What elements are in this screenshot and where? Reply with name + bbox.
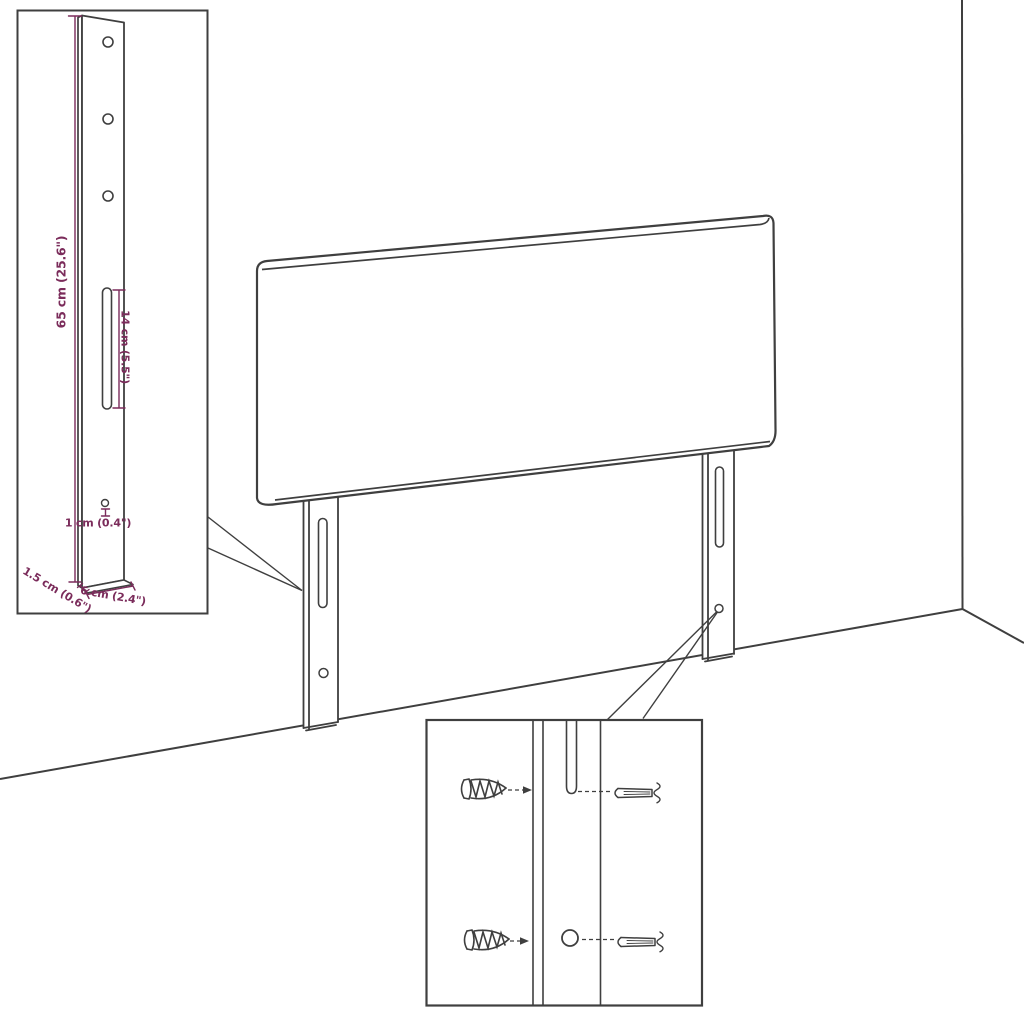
dimension-label-hole-diameter: 1 cm (0.4"): [65, 517, 131, 530]
bracket-hole-lower: [103, 191, 113, 201]
dimension-label-slot-length: 14 cm (5.5"): [119, 310, 132, 384]
headboard-assembly-diagram: 65 cm (25.6") 14 cm (5.5") 1 cm (0.4") 1…: [0, 0, 1024, 1024]
left-leg-slot: [319, 519, 328, 608]
right-leg-hole: [715, 605, 723, 613]
dimension-label-height: 65 cm (25.6"): [54, 236, 69, 329]
callout-lines-screw-detail: [607, 612, 718, 720]
left-leg-hole: [319, 669, 328, 678]
callout-lines-bracket: [208, 517, 302, 591]
headboard-panel: [257, 216, 776, 505]
diagram-canvas: [0, 0, 1024, 1024]
left-leg: [304, 490, 339, 731]
bracket-small-hole: [102, 500, 109, 507]
wall-corner-line: [962, 0, 963, 609]
bracket-hole-top: [103, 37, 113, 47]
detail-inset-screws: [427, 720, 703, 1006]
right-leg-slot: [716, 467, 724, 547]
bracket-slot: [103, 288, 112, 409]
bracket-side-view: [78, 16, 133, 594]
floor-line-right: [963, 609, 1024, 643]
bracket-hole-middle: [103, 114, 113, 124]
